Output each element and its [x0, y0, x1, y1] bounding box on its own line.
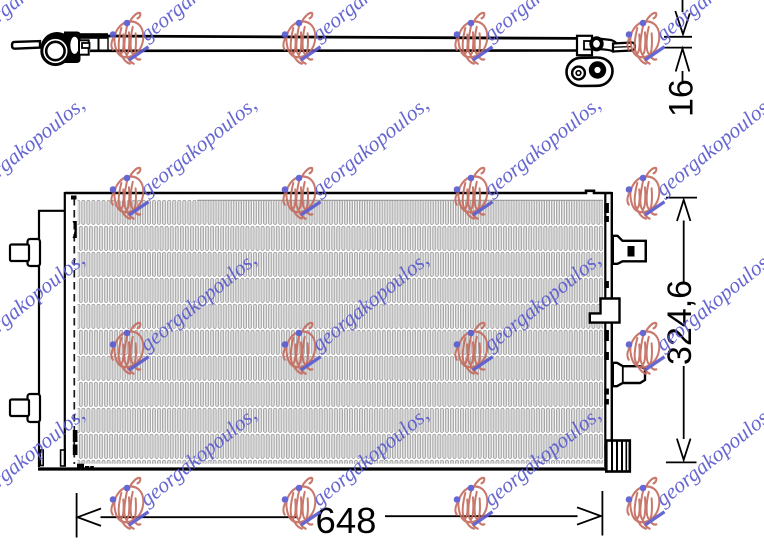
svg-text:16: 16: [663, 79, 701, 117]
